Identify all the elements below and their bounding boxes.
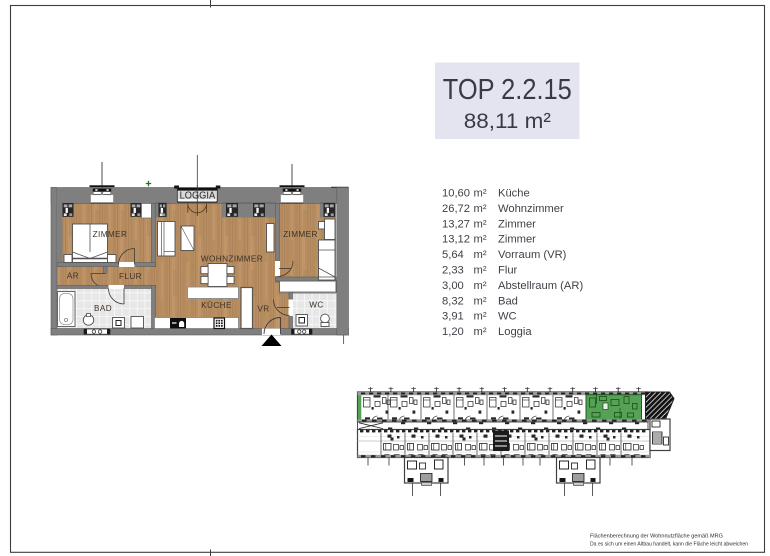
svg-text:Zimmer: Zimmer: [498, 234, 536, 246]
svg-text:FLUR: FLUR: [119, 272, 142, 281]
svg-text:26,72: 26,72: [442, 203, 470, 215]
svg-text:m²: m²: [474, 234, 487, 246]
svg-text:TOP 2.2.15: TOP 2.2.15: [443, 74, 572, 106]
svg-text:WOHNZIMMER: WOHNZIMMER: [201, 255, 263, 264]
svg-text:88,11 m²: 88,11 m²: [464, 109, 551, 133]
svg-text:m²: m²: [474, 311, 487, 323]
svg-text:13,27: 13,27: [442, 218, 470, 230]
svg-text:Flächenberechnung der Wohnnutz: Flächenberechnung der Wohnnutzfläche gem…: [590, 534, 723, 540]
svg-text:m²: m²: [474, 218, 487, 230]
svg-text:KÜCHE: KÜCHE: [201, 300, 232, 310]
svg-text:8,32: 8,32: [442, 295, 464, 307]
svg-text:ZIMMER: ZIMMER: [283, 230, 318, 239]
svg-text:WC: WC: [309, 301, 323, 310]
svg-text:1,20: 1,20: [442, 326, 464, 338]
svg-text:AR: AR: [67, 272, 79, 281]
svg-text:10,60: 10,60: [442, 188, 470, 200]
svg-text:3,00: 3,00: [442, 280, 464, 292]
svg-text:5,64: 5,64: [442, 249, 464, 261]
svg-text:Wohnzimmer: Wohnzimmer: [498, 203, 564, 215]
svg-text:Küche: Küche: [498, 188, 530, 200]
svg-text:WC: WC: [498, 311, 517, 323]
svg-text:Flur: Flur: [498, 265, 518, 277]
svg-text:m²: m²: [474, 265, 487, 277]
svg-text:Vorraum (VR): Vorraum (VR): [498, 249, 567, 261]
svg-text:m²: m²: [474, 326, 487, 338]
svg-text:13,12: 13,12: [442, 234, 470, 246]
svg-text:BAD: BAD: [94, 304, 112, 313]
svg-text:ZIMMER: ZIMMER: [93, 230, 128, 239]
svg-text:3,91: 3,91: [442, 311, 464, 323]
svg-text:m²: m²: [474, 249, 487, 261]
svg-text:m²: m²: [474, 188, 487, 200]
svg-text:Zimmer: Zimmer: [498, 218, 536, 230]
svg-text:2,33: 2,33: [442, 265, 464, 277]
svg-text:m²: m²: [474, 295, 487, 307]
svg-text:m²: m²: [474, 280, 487, 292]
svg-text:VR: VR: [257, 305, 269, 314]
svg-text:m²: m²: [474, 203, 487, 215]
svg-text:Loggia: Loggia: [498, 326, 532, 338]
svg-text:Bad: Bad: [498, 295, 518, 307]
svg-text:Abstellraum (AR): Abstellraum (AR): [498, 280, 583, 292]
svg-text:Da es sich um einen Altbau han: Da es sich um einen Altbau handelt, kann…: [590, 542, 748, 548]
